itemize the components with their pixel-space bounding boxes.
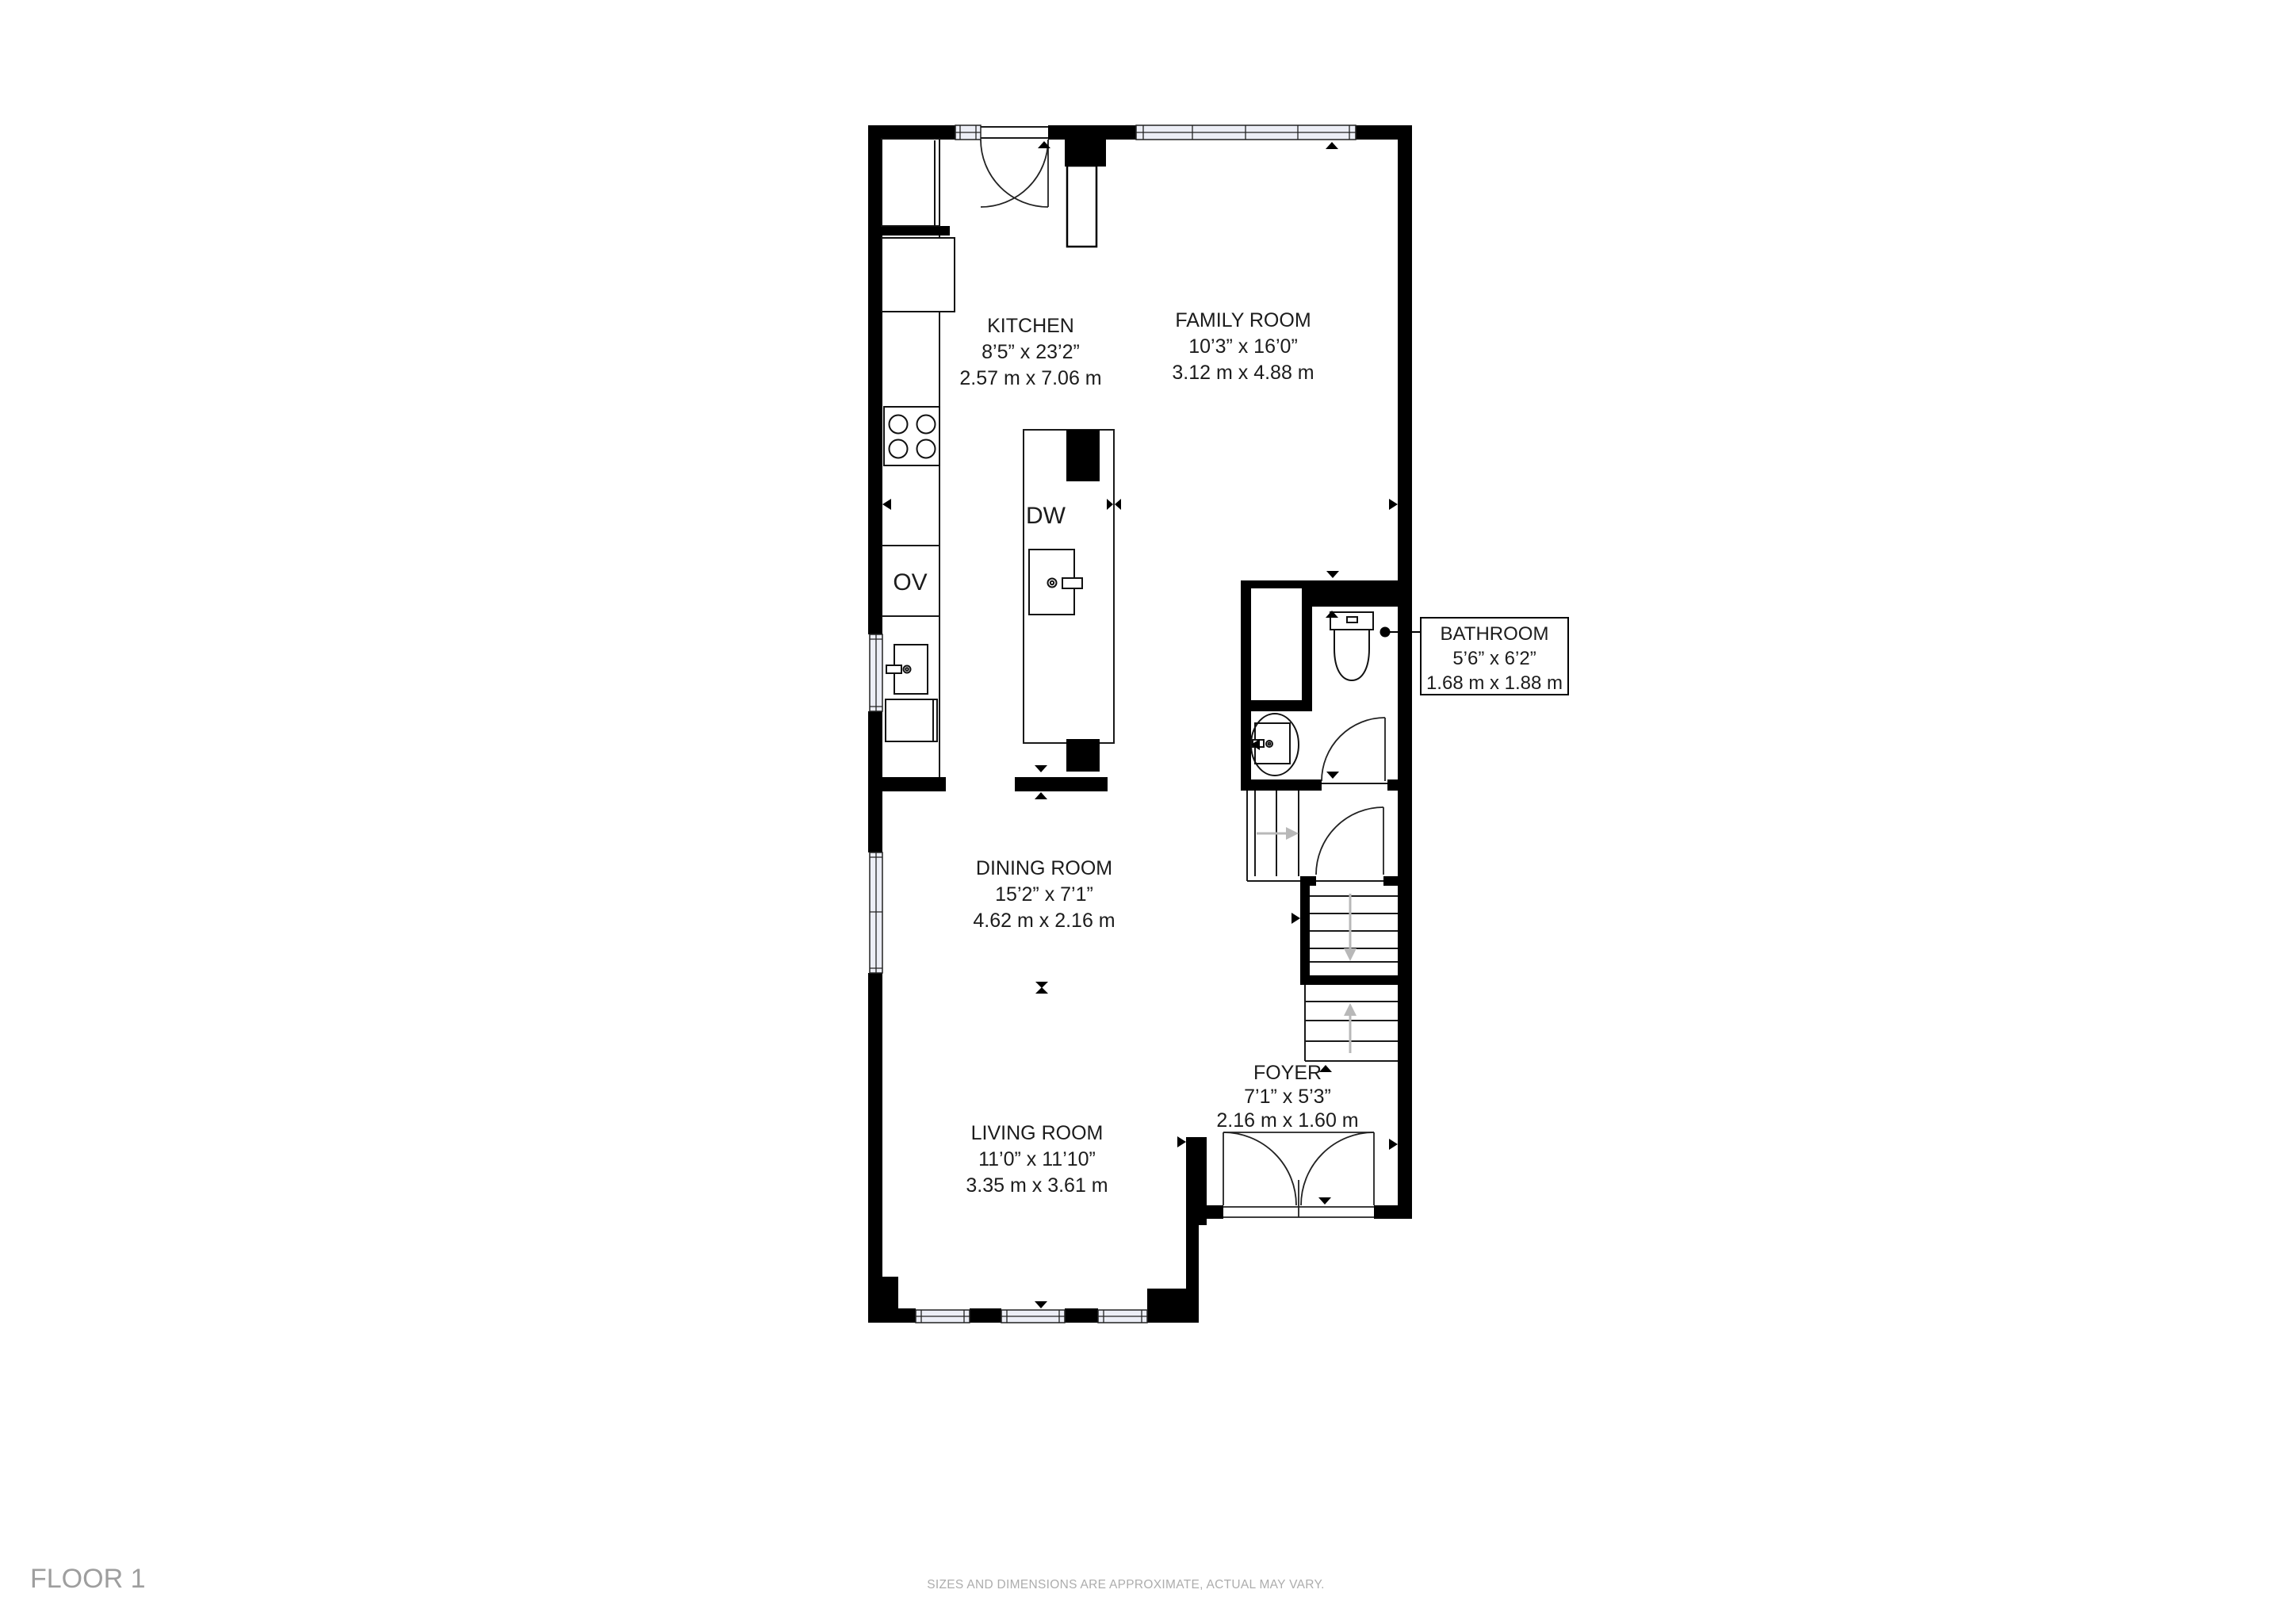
window-living-south-1 (916, 1310, 970, 1323)
duct-shaft (1067, 166, 1096, 247)
room-label-foyer-name: FOYER (1253, 1062, 1322, 1084)
room-label-foyer-metric: 2.16 m x 1.60 m (1216, 1109, 1358, 1132)
room-label-bathroom-name: BATHROOM (1441, 623, 1549, 645)
room-label-bathroom-imperial: 5’6” x 6’2” (1452, 648, 1536, 669)
cabinet (882, 238, 955, 312)
window-dining-west (870, 852, 882, 973)
room-label-dining-name: DINING ROOM (976, 857, 1112, 879)
window-living-south-3 (1098, 1310, 1147, 1323)
kitchen-island (1024, 430, 1114, 772)
kitchen-sink (886, 645, 928, 694)
room-label-living-name: LIVING ROOM (971, 1122, 1104, 1144)
disclaimer-text: SIZES AND DIMENSIONS ARE APPROXIMATE, AC… (927, 1578, 1324, 1591)
room-label-kitchen-metric: 2.57 m x 7.06 m (959, 367, 1101, 389)
room-label-living-imperial: 11’0” x 11’10” (978, 1148, 1096, 1170)
kitchen-double-door (981, 140, 1048, 207)
room-label-kitchen-imperial: 8’5” x 23’2” (982, 341, 1080, 363)
entry-double-door (1223, 1132, 1374, 1217)
toilet (1330, 612, 1373, 680)
dishwasher-label: DW (1026, 503, 1066, 529)
room-label-family-metric: 3.12 m x 4.88 m (1172, 362, 1314, 384)
stairs (1255, 791, 1398, 1053)
island-sink (1029, 550, 1082, 615)
stair-landing-door (1316, 807, 1383, 875)
room-label-dining-imperial: 15’2” x 7’1” (995, 883, 1093, 906)
dimension-markers (882, 141, 1398, 1308)
cooktop (884, 407, 939, 465)
room-label-family-name: FAMILY ROOM (1175, 309, 1311, 331)
callout-anchor-dot (1380, 627, 1391, 638)
room-label-kitchen-name: KITCHEN (987, 315, 1074, 337)
floor-plan-canvas: BATHROOM 5’6” x 6’2” 1.68 m x 1.88 m KIT… (0, 0, 2296, 1624)
window-kitchen-top (955, 125, 981, 140)
dishwasher-cabinet (886, 699, 937, 741)
window-family-top (1136, 125, 1356, 140)
refrigerator (882, 139, 939, 226)
window-living-south-2 (1001, 1310, 1065, 1323)
room-labels: KITCHEN 8’5” x 23’2” 2.57 m x 7.06 m FAM… (893, 309, 1358, 1197)
room-label-family-imperial: 10’3” x 16’0” (1188, 335, 1298, 358)
window-kitchen-west (870, 634, 882, 711)
room-label-bathroom-metric: 1.68 m x 1.88 m (1426, 672, 1563, 694)
floor-title: FLOOR 1 (30, 1564, 145, 1594)
oven-label: OV (893, 569, 927, 596)
room-label-foyer-imperial: 7’1” x 5’3” (1244, 1086, 1331, 1108)
room-label-living-metric: 3.35 m x 3.61 m (966, 1174, 1108, 1197)
room-label-dining-metric: 4.62 m x 2.16 m (973, 910, 1115, 932)
